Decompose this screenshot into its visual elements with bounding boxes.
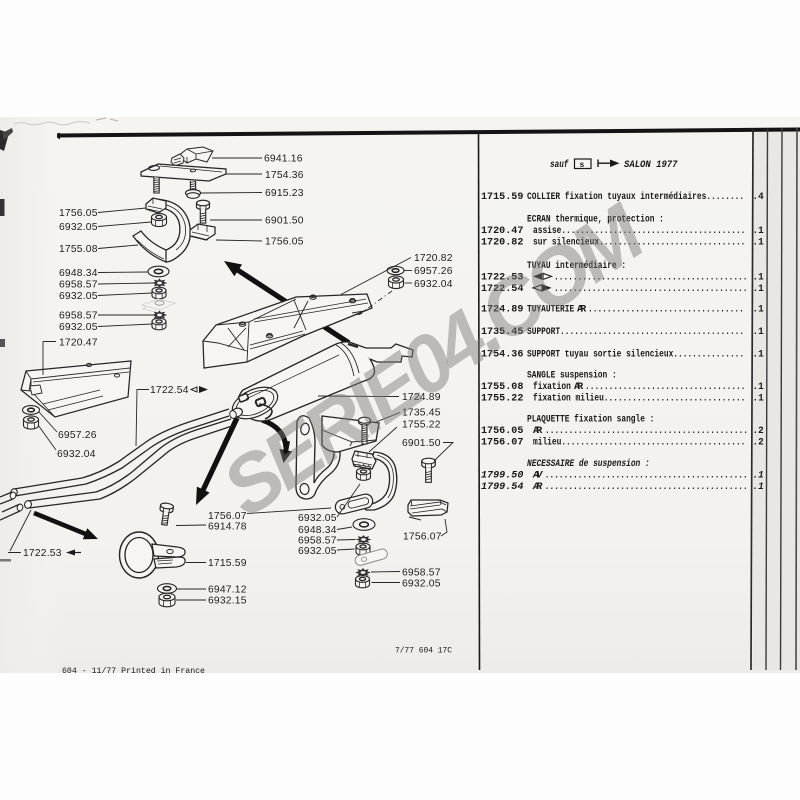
svg-text:fixation: fixation	[533, 381, 571, 393]
svg-text:6958.57: 6958.57	[59, 311, 98, 322]
svg-text:..............................: ........................................…	[545, 426, 748, 437]
svg-text:1755.08: 1755.08	[59, 244, 98, 255]
svg-text:.1: .1	[753, 305, 764, 316]
svg-text:..............................: ........................................…	[545, 471, 748, 482]
svg-text:6901.50: 6901.50	[265, 216, 304, 227]
svg-text:1715.59: 1715.59	[208, 558, 247, 569]
svg-text:.4: .4	[753, 192, 764, 203]
svg-text:V: V	[536, 471, 543, 482]
svg-text:6932.05: 6932.05	[402, 579, 441, 590]
svg-text:6947.12: 6947.12	[208, 585, 247, 596]
svg-text:6932.15: 6932.15	[208, 596, 247, 607]
svg-text:.2: .2	[753, 438, 764, 449]
svg-text:6957.26: 6957.26	[58, 430, 97, 441]
svg-text:6932.05: 6932.05	[59, 291, 98, 302]
svg-text:R: R	[536, 426, 542, 437]
svg-text:..............................: ........................................…	[545, 482, 748, 493]
svg-text:1720.82: 1720.82	[481, 238, 523, 249]
svg-text:1756.05: 1756.05	[481, 426, 523, 437]
svg-text:.1: .1	[753, 327, 764, 338]
svg-text:.1: .1	[753, 394, 764, 405]
svg-text:.1: .1	[753, 350, 764, 361]
svg-text:1722.53: 1722.53	[23, 548, 62, 559]
svg-text:604 - 11/77 Printed in France: 604 - 11/77 Printed in France	[62, 666, 205, 676]
svg-text:6901.50: 6901.50	[402, 438, 441, 449]
svg-text:1755.08: 1755.08	[481, 382, 523, 393]
svg-text:6958.57: 6958.57	[298, 536, 337, 547]
svg-text:fixation milieu...............: fixation milieu.........................…	[533, 393, 745, 405]
svg-text:1715.59: 1715.59	[481, 192, 523, 203]
svg-text:6932.05: 6932.05	[298, 546, 337, 557]
svg-text:1755.22: 1755.22	[481, 394, 523, 405]
svg-text:6941.16: 6941.16	[264, 154, 303, 165]
svg-text:6914.78: 6914.78	[208, 522, 247, 533]
svg-text:6932.05: 6932.05	[298, 513, 337, 524]
svg-text:1756.07: 1756.07	[403, 532, 442, 543]
svg-text:6958.57: 6958.57	[59, 280, 98, 291]
svg-text:.1: .1	[753, 284, 764, 295]
svg-text:1720.82: 1720.82	[414, 253, 453, 264]
svg-text:1756.07: 1756.07	[481, 438, 523, 449]
svg-text:1799.54: 1799.54	[481, 482, 523, 493]
svg-text:SUPPORT tuyau sortie silencieu: SUPPORT tuyau sortie silencieux.........…	[527, 349, 744, 361]
svg-text:COLLIER fixation tuyaux interm: COLLIER fixation tuyaux intermédiaires..…	[527, 191, 744, 203]
svg-text:6915.23: 6915.23	[265, 188, 304, 199]
svg-text:NECESSAIRE de suspension :: NECESSAIRE de suspension :	[527, 458, 650, 470]
svg-text:PLAQUETTE fixation sangle :: PLAQUETTE fixation sangle :	[527, 414, 654, 426]
svg-text:.2: .2	[753, 426, 764, 437]
svg-text:sauf: sauf	[550, 159, 569, 171]
svg-text:SALON 1977: SALON 1977	[624, 160, 678, 171]
svg-text:.1: .1	[753, 273, 764, 284]
svg-text:SANGLE suspension :: SANGLE suspension :	[527, 370, 617, 382]
svg-text:1756.05: 1756.05	[265, 237, 304, 248]
svg-text:.1: .1	[753, 482, 764, 493]
svg-text:6932.05: 6932.05	[59, 222, 98, 233]
svg-text:1756.05: 1756.05	[59, 208, 98, 219]
svg-text:1720.47: 1720.47	[481, 226, 523, 237]
svg-text:milieu........................: milieu..................................…	[533, 437, 745, 449]
svg-text:..............................: .................................	[588, 305, 744, 316]
svg-text:R: R	[536, 482, 543, 493]
svg-text:6932.04: 6932.04	[57, 449, 96, 460]
svg-text:..............................: ..................................	[585, 382, 746, 393]
svg-text:1799.50: 1799.50	[481, 471, 523, 482]
svg-text:1756.07: 1756.07	[208, 511, 247, 522]
svg-text:.1: .1	[753, 471, 764, 482]
svg-text:7/77 604 17C: 7/77 604 17C	[395, 647, 452, 656]
svg-text:6958.57: 6958.57	[402, 568, 441, 579]
svg-text:6948.34: 6948.34	[298, 525, 337, 536]
svg-text:.1: .1	[753, 238, 764, 249]
svg-text:.1: .1	[753, 382, 764, 393]
svg-text:1754.36: 1754.36	[265, 170, 304, 181]
svg-text:6932.04: 6932.04	[414, 279, 453, 290]
svg-text:6948.34: 6948.34	[59, 268, 98, 279]
svg-text:6932.05: 6932.05	[59, 322, 98, 333]
svg-text:s: s	[580, 161, 585, 170]
svg-text:.1: .1	[753, 226, 764, 237]
svg-text:1722.54: 1722.54	[150, 385, 189, 396]
svg-text:6957.26: 6957.26	[414, 266, 453, 277]
svg-text:R: R	[577, 382, 583, 393]
svg-text:1720.47: 1720.47	[59, 338, 98, 349]
